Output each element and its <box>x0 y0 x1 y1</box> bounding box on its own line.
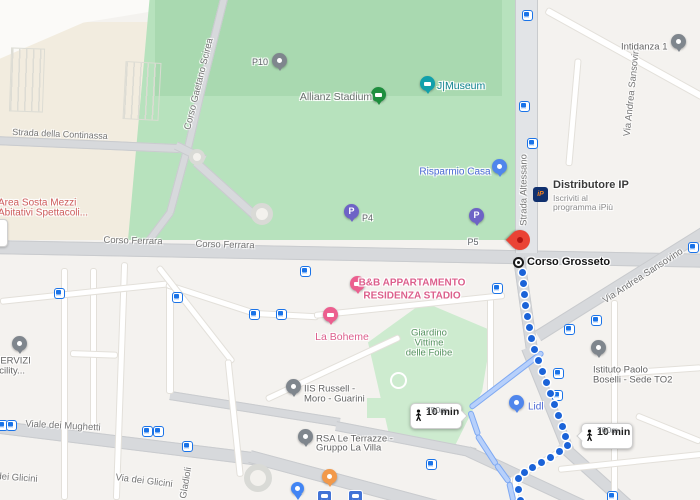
road-label-ferrara-1: Corso Ferrara <box>103 235 162 248</box>
school-icon <box>291 384 296 389</box>
route-dot <box>524 313 531 320</box>
bus-stop-icon[interactable] <box>300 266 311 277</box>
route-dot <box>528 335 535 342</box>
parking-p5-pin[interactable]: P <box>469 208 484 223</box>
route-dot <box>535 357 542 364</box>
parking-icon: P <box>469 208 484 223</box>
bus-stop-icon[interactable] <box>142 426 153 437</box>
bus-stop-icon[interactable] <box>249 309 260 320</box>
school-russell-pin[interactable] <box>286 379 301 394</box>
parking-p10-pin[interactable] <box>272 53 287 68</box>
street-segment <box>487 298 494 395</box>
map-canvas[interactable]: Corso Gaetano Scirea Strada della Contin… <box>0 0 700 500</box>
poi-label-lidl[interactable]: Lidl <box>528 402 544 413</box>
poi-label-jmuseum[interactable]: J|Museum <box>437 80 485 92</box>
road-label-gladioli: Gladioli <box>178 466 194 499</box>
route-dot <box>517 497 524 500</box>
walk-badge-750m[interactable]: 10 min 750m <box>410 403 462 429</box>
bus-stop-icon[interactable] <box>522 10 533 21</box>
route-dot <box>564 442 571 449</box>
restaurant-icon <box>327 474 332 479</box>
poi-label-rsa-2: Gruppo La Villa <box>316 443 381 454</box>
route-dot <box>555 412 562 419</box>
bus-stop-icon[interactable] <box>6 420 17 431</box>
bus-stop-icon[interactable] <box>564 324 575 335</box>
walking-person-icon <box>414 409 423 422</box>
street-segment <box>0 280 171 305</box>
poi-label-area-sosta-2: Abitativi Spettacoli... <box>0 208 88 219</box>
bus-stop-icon[interactable] <box>492 283 503 294</box>
pin-glyph <box>277 58 282 63</box>
la-boheme-pin[interactable] <box>323 307 338 322</box>
route-dot <box>547 390 554 397</box>
museum-icon <box>424 82 431 86</box>
route-dot <box>539 368 546 375</box>
poi-label-distributore-sub2: programma iPiù <box>553 202 613 212</box>
train-station-icon[interactable] <box>317 490 332 500</box>
building-icon <box>295 486 300 491</box>
street-segment <box>635 412 700 445</box>
bank-poi-icon[interactable] <box>291 482 304 495</box>
route-dot <box>519 269 526 276</box>
poi-label-giardino-3: delle Foibe <box>406 348 452 359</box>
stadium-icon <box>375 93 382 97</box>
poi-label-corso-grosseto[interactable]: Corso Grosseto <box>527 256 610 268</box>
bus-stop-icon[interactable] <box>276 309 287 320</box>
route-dot <box>521 469 528 476</box>
walk-distance: 700m <box>597 425 618 435</box>
poi-label-distributore-title[interactable]: Distributore IP <box>553 179 629 191</box>
street-segment <box>565 58 581 166</box>
poi-label-intidanza[interactable]: Intidanza 1 <box>621 42 667 53</box>
distributore-ip-logo[interactable]: iP <box>533 187 548 202</box>
road-label-glicini: Via dei Glicini <box>115 472 173 490</box>
park-path-circle <box>390 372 407 389</box>
poi-label-allianz[interactable]: Allianz Stadium <box>300 91 372 103</box>
poi-label-p10: P10 <box>252 57 268 67</box>
intidanza-pin[interactable] <box>671 34 686 49</box>
route-dot <box>556 448 563 455</box>
bus-stop-icon[interactable] <box>527 138 538 149</box>
train-station-icon[interactable] <box>348 490 363 500</box>
route-dot <box>522 302 529 309</box>
route-dot <box>547 454 554 461</box>
bus-stop-icon[interactable] <box>688 242 699 253</box>
street-segment <box>113 262 128 500</box>
restaurant-pin[interactable] <box>322 469 337 484</box>
route-dot <box>515 486 522 493</box>
transit-stop-icon[interactable] <box>513 257 524 268</box>
bus-stop-icon[interactable] <box>54 288 65 299</box>
school-icon <box>596 345 601 350</box>
parking-p4-pin[interactable]: P <box>344 204 359 219</box>
pin-glyph <box>17 341 22 346</box>
museum-pin[interactable] <box>420 76 435 91</box>
route-dot <box>531 346 538 353</box>
rsa-pin[interactable] <box>298 429 313 444</box>
route-dot <box>538 459 545 466</box>
street-segment <box>255 310 319 320</box>
route-dot <box>515 475 522 482</box>
poi-label-russell-2: Moro - Guarini <box>304 394 365 405</box>
route-dot <box>551 401 558 408</box>
pin-glyph <box>676 39 681 44</box>
bus-stop-icon[interactable] <box>591 315 602 326</box>
street-segment <box>70 350 118 359</box>
bus-stop-icon[interactable] <box>172 292 183 303</box>
shopping-cart-icon <box>514 400 519 405</box>
walk-distance: 750m <box>426 405 447 415</box>
roundabout <box>251 203 273 225</box>
school-boselli-pin[interactable] <box>591 340 606 355</box>
stadium-pin[interactable] <box>371 87 386 102</box>
route-dot <box>559 423 566 430</box>
bus-stop-icon[interactable] <box>553 368 564 379</box>
bed-icon <box>327 313 334 317</box>
roundabout <box>244 464 272 492</box>
route-dot <box>521 291 528 298</box>
lidl-pin[interactable] <box>509 395 524 410</box>
street-segment <box>61 268 68 500</box>
bus-stop-icon[interactable] <box>153 426 164 437</box>
risparmio-casa-pin[interactable] <box>492 159 507 174</box>
street-segment <box>611 300 618 500</box>
route-dot <box>520 280 527 287</box>
roundabout <box>189 149 205 165</box>
parking-lot-grid <box>123 61 162 121</box>
poi-label-p4: P4 <box>362 213 373 223</box>
pin-glyph <box>303 434 308 439</box>
route-dot <box>543 379 550 386</box>
poi-label-la-boheme[interactable]: La Boheme <box>315 331 369 343</box>
clipped-map-label <box>0 219 8 247</box>
walk-badge-700m[interactable]: 10 min 700m <box>581 423 633 449</box>
route-dot <box>529 464 536 471</box>
road-label-ferrara-2: Corso Ferrara <box>195 239 254 252</box>
alt-route-segment[interactable] <box>467 410 481 437</box>
parking-icon: P <box>344 204 359 219</box>
poi-label-boselli-2: Boselli - Sede TO2 <box>593 375 672 386</box>
bus-stop-icon[interactable] <box>519 101 530 112</box>
road-label-altessano: Strada Altessano <box>519 154 530 226</box>
shopping-icon <box>497 164 502 169</box>
road-label-glicini-left: dei Glicini <box>0 471 38 485</box>
servizi-pin[interactable] <box>12 336 27 351</box>
bus-stop-icon[interactable] <box>426 459 437 470</box>
poi-label-bnb-2: RESIDENZA STADIO <box>363 291 460 302</box>
bus-stop-icon[interactable] <box>182 441 193 452</box>
poi-label-risparmio[interactable]: Risparmio Casa <box>419 167 490 178</box>
poi-label-servizi-2: acility... <box>0 366 25 377</box>
small-green-area <box>367 398 389 418</box>
bus-stop-icon[interactable] <box>607 491 618 500</box>
route-dot <box>526 324 533 331</box>
poi-label-bnb-1[interactable]: B&B APPARTAMENTO <box>359 278 466 289</box>
poi-label-p5: P5 <box>467 237 478 247</box>
parking-lot-grid <box>9 47 45 112</box>
route-dot <box>562 433 569 440</box>
